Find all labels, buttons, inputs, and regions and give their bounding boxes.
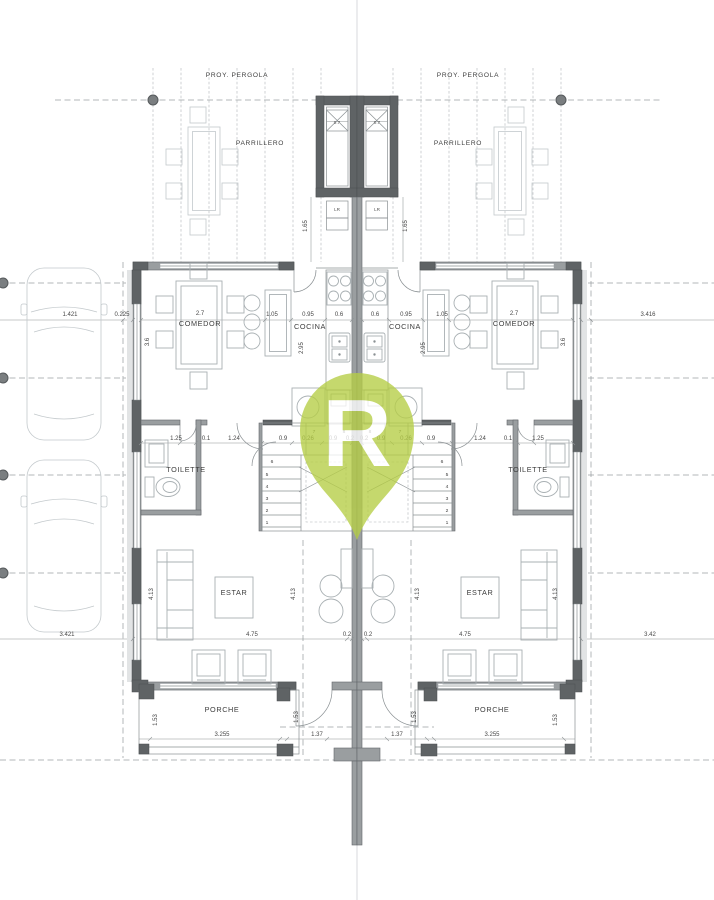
dim-hall-d2-right: 0.9 [427,436,436,442]
dim-lot-right-bottom: 3.42 [644,632,656,638]
watermark-pin: R [300,373,414,540]
dim-island-right: 0.95 [400,312,412,318]
dim-hall-d-left: 0.9 [279,436,288,442]
room-label-comedor-right: COMEDOR [493,319,535,328]
axis-marker [0,278,8,288]
dim-wallgap-right: 0.2 [364,632,373,638]
label-parrillero-right: PARRILLERO [434,140,482,147]
dim-porche-width-left: 3.255 [214,732,230,738]
room-label-estar-left: ESTAR [221,588,248,597]
room-label-comedor-left: COMEDOR [179,319,221,328]
room-label-toilette-right: TOILETTE [508,465,548,474]
stair-num: 3 [446,496,449,502]
dim-setback-left: 0.225 [114,312,130,318]
dim-comedor-left: 2.7 [196,311,205,317]
dim-hall-b-left: 0.1 [202,436,211,442]
dim-laundry-left: 1.65 [303,220,309,232]
dim-door-right: 1.37 [391,732,403,738]
stair-num: 1 [266,520,269,526]
room-label-porche-right: PORCHE [475,705,510,714]
dim-counter-right: 0.6 [371,312,380,318]
car-outline [21,268,107,440]
dim-comedor-depth-right: 3.6 [561,337,567,346]
label-parrillero-left: PARRILLERO [236,140,284,147]
dim-porche-depth-right: 1.53 [553,714,559,726]
stair-num: 5 [446,472,449,478]
watermark-letter: R [322,380,391,487]
axis-marker [0,568,8,578]
dim-hall-a-left: 1.25 [170,436,182,442]
label-lr-right: LR [374,207,381,212]
dim-hall-b-right: 0.1 [504,436,513,442]
floor-plan-page: PROY. PERGOLA PROY. PERGOLA PARRILLERO P… [0,0,714,900]
dim-hall-c-left: 1.24 [228,436,240,442]
dim-lot-left: 1.421 [62,312,78,318]
stair-num: 4 [266,484,269,490]
dim-estar-width-left: 4.75 [246,632,258,638]
dim-kitchen-depth-left: 2.95 [299,342,305,354]
dim-lot-right: 3.416 [640,312,656,318]
label-proy-pergola-right: PROY. PERGOLA [437,72,499,79]
dim-estar-depth-right2: 4.13 [415,588,421,600]
dim-estar-depth-left2: 4.13 [291,588,297,600]
room-label-cocina-right: COCINA [389,322,421,331]
label-lr-left: LR [334,207,341,212]
dim-porche-depth-right2: 1.53 [412,711,418,723]
axis-marker [0,373,8,383]
dim-door-left: 1.37 [311,732,323,738]
dim-porche-depth-left: 1.53 [153,714,159,726]
dim-kitchen-depth-right: 2.95 [421,342,427,354]
stair-num: 1 [446,520,449,526]
dim-comedor-depth-left: 3.6 [145,337,151,346]
dim-island-left: 0.95 [302,312,314,318]
room-label-porche-left: PORCHE [205,705,240,714]
dim-porche-width-right: 3.255 [484,732,500,738]
stair-num: 4 [446,484,449,490]
stair-num: 6 [441,459,444,465]
dim-hall-c-right: 1.24 [474,436,486,442]
dim-pasillo-right: 1.05 [436,312,448,318]
stair-num: 5 [266,472,269,478]
label-proy-pergola-left: PROY. PERGOLA [206,72,268,79]
room-label-cocina-left: COCINA [294,322,326,331]
dim-lot-left-bottom: 3.421 [59,632,75,638]
dim-estar-depth-right: 4.13 [553,588,559,600]
stair-num: 2 [266,508,269,514]
dim-laundry-right: 1.65 [403,220,409,232]
dim-estar-width-right: 4.75 [459,632,471,638]
dim-comedor-right: 2.7 [510,311,519,317]
room-label-toilette-left: TOILETTE [166,465,206,474]
room-label-estar-right: ESTAR [467,588,494,597]
stair-num: 6 [271,459,274,465]
floor-plan-canvas: PROY. PERGOLA PROY. PERGOLA PARRILLERO P… [0,0,714,900]
dim-porche-depth-left2: 1.53 [294,711,300,723]
dim-counter-left: 0.6 [335,312,344,318]
dim-grill-left: 0.7 [334,120,341,125]
axis-marker [0,470,8,480]
dim-hall-a-right: 1.25 [532,436,544,442]
stair-num: 2 [446,508,449,514]
dim-grill-right: 0.7 [374,120,381,125]
parked-cars [21,268,107,632]
dim-pasillo-left: 1.05 [266,312,278,318]
dim-estar-depth-left: 4.13 [149,588,155,600]
dim-wallgap-left: 0.2 [343,632,352,638]
stair-num: 3 [266,496,269,502]
